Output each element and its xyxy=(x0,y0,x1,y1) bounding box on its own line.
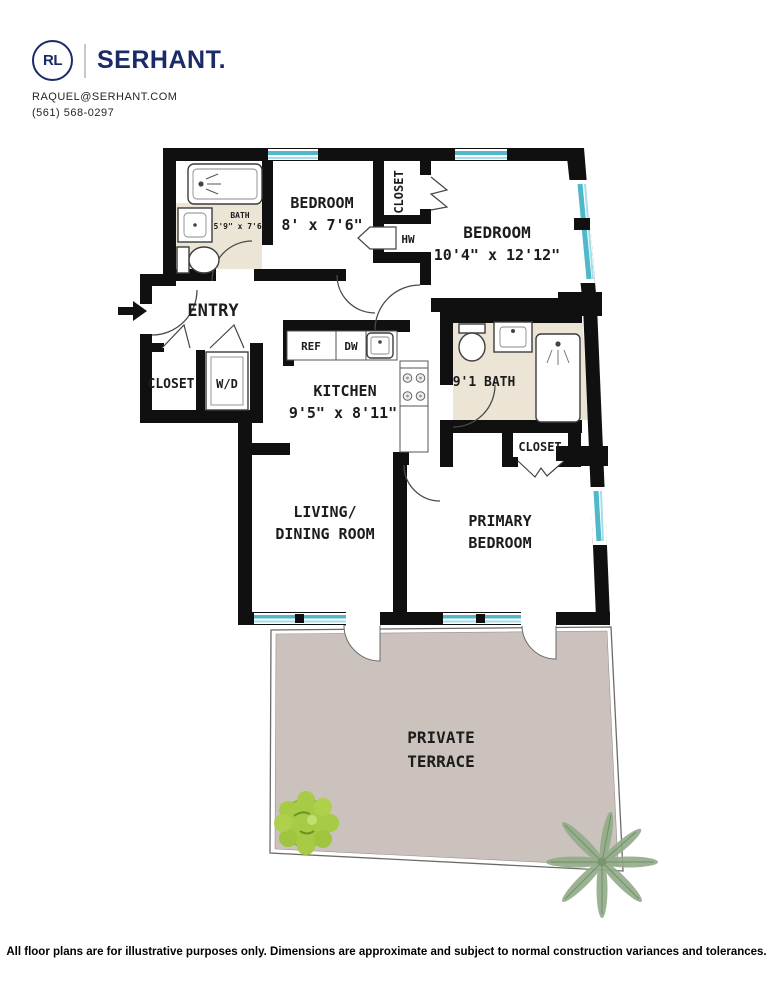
bath1-toilet xyxy=(189,247,219,273)
shower-head-icon xyxy=(198,181,203,186)
agent-email: RAQUEL@SERHANT.COM xyxy=(32,90,226,106)
door-gap-primary-terrace xyxy=(521,611,556,626)
floorplan-page: RL SERHANT. RAQUEL@SERHANT.COM (561) 568… xyxy=(0,0,773,1000)
terrace-label-line1: PRIVATE xyxy=(407,728,474,747)
brand-wordmark: SERHANT. xyxy=(97,46,226,75)
rl-monogram-logo: RL xyxy=(32,40,73,81)
agent-phone: (561) 568-0297 xyxy=(32,106,226,122)
window-bedroom2-right xyxy=(569,180,595,283)
logo-row: RL SERHANT. xyxy=(32,40,226,81)
closet1-label: CLOSET xyxy=(392,170,406,213)
shower-stall xyxy=(536,334,580,422)
entry-label: ENTRY xyxy=(187,301,239,321)
primary-label-line2: BEDROOM xyxy=(468,534,531,552)
window-primary-right xyxy=(590,487,607,545)
logo-divider xyxy=(84,44,86,78)
primary-door-arc xyxy=(404,465,440,501)
bedroom1-label: BEDROOM xyxy=(290,194,353,212)
living-label-line1: LIVING/ xyxy=(293,503,356,521)
closet3-bifold-door xyxy=(518,461,564,477)
living-label-line2: DINING ROOM xyxy=(275,525,374,543)
closet1-bifold-door xyxy=(431,177,447,210)
floor-plan-drawing: BATH 5'9" x 7'6" BEDROOM 8' x 7'6" CLOSE… xyxy=(0,0,773,1000)
closet3-label: CLOSET xyxy=(518,440,561,454)
stove xyxy=(400,368,428,406)
hw-label: HW xyxy=(401,233,415,246)
kitchen-dims: 9'5" x 8'11" xyxy=(289,404,397,422)
hw-closet-door xyxy=(358,227,396,249)
rl-monogram-text: RL xyxy=(43,52,62,69)
window-living-bottom xyxy=(254,613,346,624)
bath1-dims: 5'9" x 7'6" xyxy=(214,222,267,231)
bedroom1-dims: 8' x 7'6" xyxy=(281,216,362,234)
disclaimer: All floor plans are for illustrative pur… xyxy=(0,946,773,958)
window-primary-bottom xyxy=(443,613,521,624)
shower-head-icon xyxy=(555,341,560,346)
door-gap-living-terrace xyxy=(346,611,380,626)
wd-open-door xyxy=(210,325,244,348)
bath1-label: BATH xyxy=(230,211,249,220)
closet2-label: CLOSET xyxy=(148,377,195,392)
bedroom2-dims: 10'4" x 12'12" xyxy=(434,246,560,264)
terrace-label-line2: TERRACE xyxy=(407,752,474,771)
bath2-toilet-tank xyxy=(459,324,485,333)
bath2-label: 9'1 BATH xyxy=(453,375,516,390)
bedroom2-label: BEDROOM xyxy=(463,223,530,242)
window-bedroom1-top xyxy=(268,149,318,160)
wd-label: W/D xyxy=(216,377,238,391)
dw-label: DW xyxy=(344,340,358,353)
bath2-toilet xyxy=(459,333,485,361)
header: RL SERHANT. RAQUEL@SERHANT.COM (561) 568… xyxy=(32,40,226,122)
agent-contact: RAQUEL@SERHANT.COM (561) 568-0297 xyxy=(32,90,226,122)
kitchen-label: KITCHEN xyxy=(313,382,376,400)
primary-label-line1: PRIMARY xyxy=(468,512,531,530)
bath1-toilet-tank xyxy=(177,247,189,273)
window-bedroom2-top xyxy=(455,149,507,160)
ref-label: REF xyxy=(301,340,321,353)
